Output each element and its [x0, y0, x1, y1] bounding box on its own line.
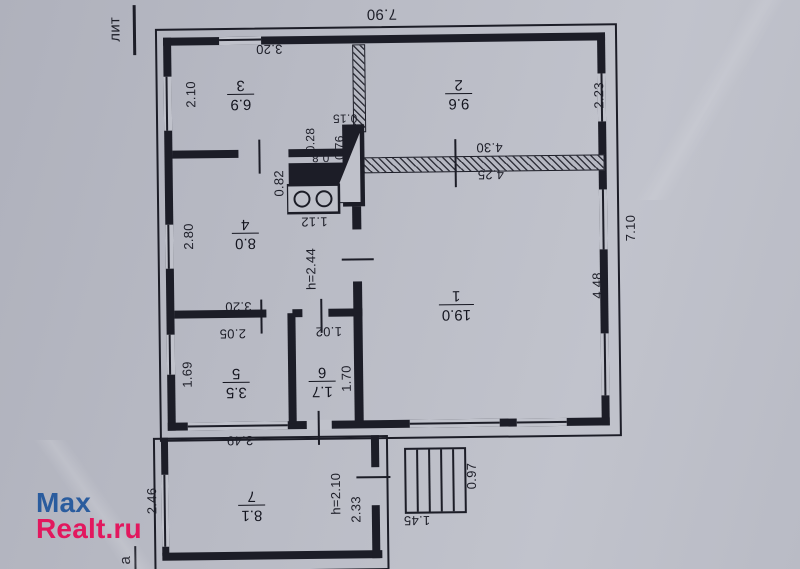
room-label-1: 19.01: [438, 287, 474, 323]
dim-chimney-b: 0.76: [332, 135, 346, 160]
room-label-4: 8.04: [232, 216, 259, 252]
dim-chimney-a: 0.28: [303, 128, 317, 153]
dim-right-side: 7.10: [623, 215, 638, 242]
dim-stove-side: 0.82: [271, 170, 286, 197]
wall: [371, 435, 379, 467]
door-tick: [260, 300, 262, 334]
window: [219, 37, 261, 46]
dim-room1-inner: 4.25: [477, 167, 504, 182]
wall: [172, 150, 238, 159]
room-label-6: 1.76: [309, 364, 336, 400]
liter-label: лит: [106, 17, 123, 42]
annex-letter: а: [117, 556, 134, 565]
watermark: Max Realt.ru: [36, 490, 142, 542]
dim-annex-right: 2.33: [348, 496, 363, 523]
room-label-3: 6.93: [227, 77, 254, 113]
dim-annex-height: h=2.10: [328, 473, 344, 515]
window: [161, 475, 169, 547]
dim-stairs-width: 1.45: [404, 513, 431, 528]
wall: [174, 310, 266, 319]
liter-underline: [133, 5, 136, 55]
room-label-2: 9.62: [445, 76, 472, 112]
dim-room2-window: 2.23: [591, 82, 606, 109]
dim-room2-inner: 4.30: [476, 140, 503, 155]
door-tick: [258, 140, 260, 174]
furnace-stove-icon: [286, 122, 367, 215]
annex-letter-underline: [134, 546, 136, 569]
dim-top-width: 7.90: [366, 5, 397, 22]
dim-stairs-depth: 0.97: [464, 463, 479, 490]
door-tick: [342, 258, 374, 260]
dim-room7-width: 3.49: [227, 433, 254, 448]
window: [188, 421, 288, 430]
watermark-line2: Realt.ru: [36, 516, 142, 542]
door-tick: [318, 411, 320, 445]
floorplan-drawing: 7.90 лит 3.20 2.10 2.23 0.15 0.28 0.76 0…: [0, 0, 800, 569]
dim-room6-depth: 1.70: [339, 365, 354, 392]
dim-room3-width: 3.20: [256, 42, 283, 57]
dim-room4-window: 2.80: [181, 223, 196, 250]
dim-hall-height: h=2.44: [303, 248, 319, 290]
dim-room7-window: 2.46: [144, 488, 159, 515]
dim-room5-window: 1.69: [179, 361, 194, 388]
window: [601, 333, 610, 395]
floorplan-photo: 7.90 лит 3.20 2.10 2.23 0.15 0.28 0.76 0…: [0, 0, 800, 569]
staircase: [404, 447, 467, 514]
wall: [372, 505, 381, 558]
dim-stove-front: 1.12: [301, 214, 328, 229]
wall: [287, 313, 296, 423]
dim-room5-width: 2.05: [219, 326, 246, 341]
dim-partition: 0.15: [333, 111, 358, 125]
wall: [353, 312, 363, 422]
room-label-5: 3.55: [223, 365, 250, 401]
dim-room6-width: 1.02: [315, 324, 342, 339]
window: [517, 418, 567, 427]
window: [599, 189, 608, 249]
window: [164, 77, 173, 131]
dim-room3-window: 2.10: [183, 81, 198, 108]
dim-room1-right: 4.48: [589, 272, 604, 299]
dim-room4-width: 3.20: [225, 299, 252, 314]
window: [165, 225, 174, 269]
dim-chimney-c: 0.8: [312, 151, 330, 165]
door-tick: [356, 476, 390, 478]
window: [410, 419, 500, 428]
window: [167, 335, 175, 375]
room-label-7: 8.17: [238, 488, 265, 524]
